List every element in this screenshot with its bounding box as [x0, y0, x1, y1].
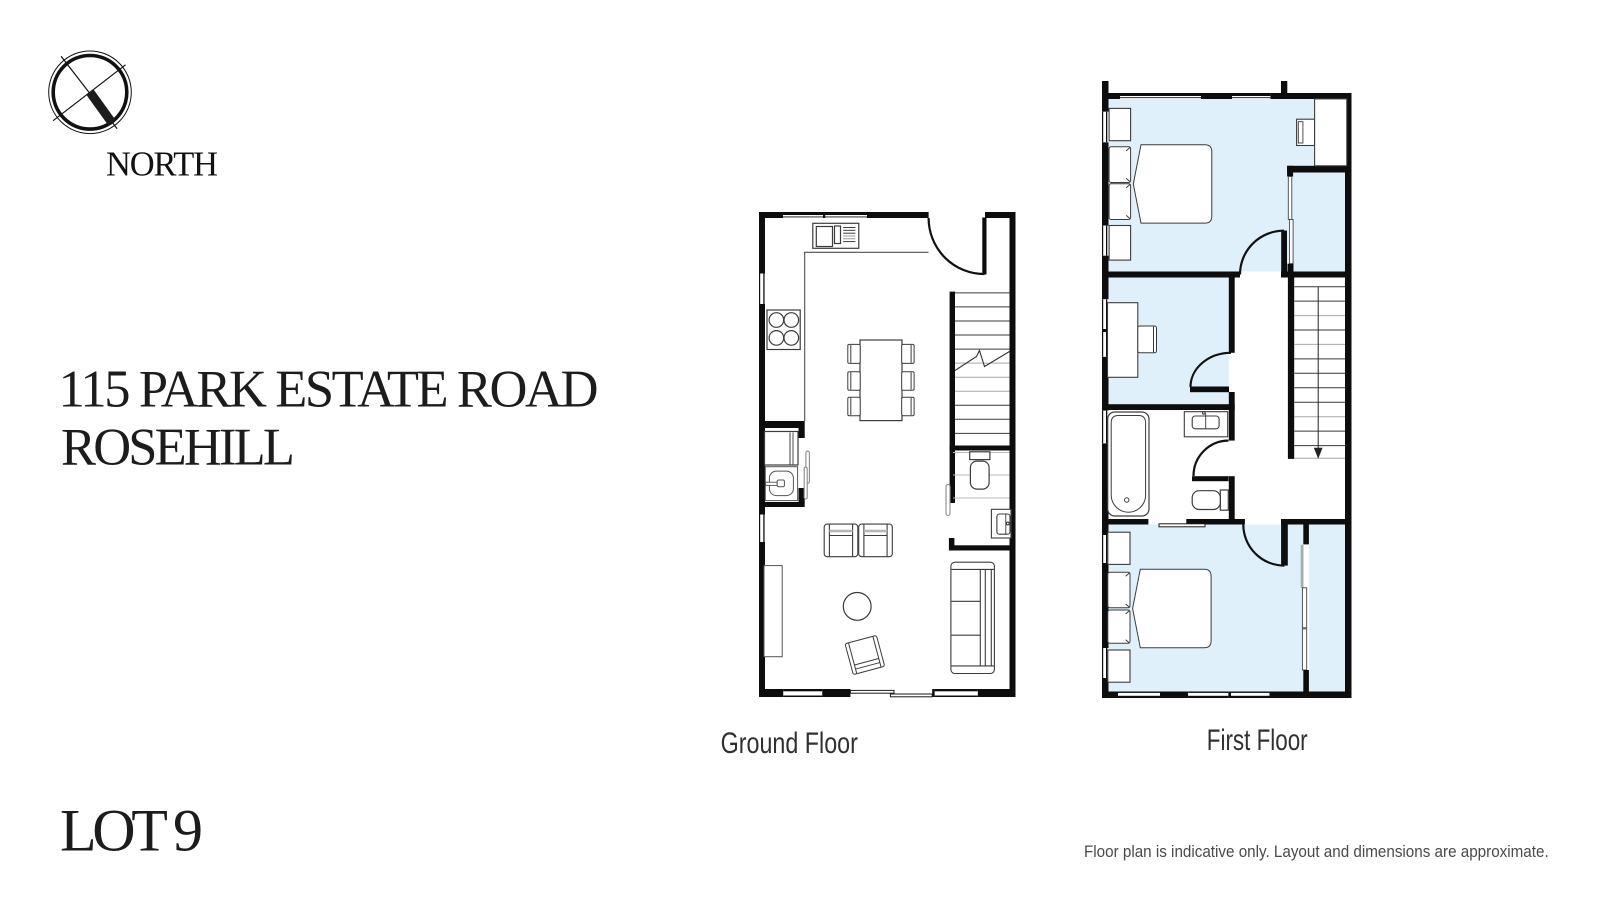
svg-text:Ground Floor: Ground Floor	[721, 726, 858, 759]
svg-text:LOT 9: LOT 9	[60, 798, 203, 864]
svg-text:ROSEHILL: ROSEHILL	[61, 419, 295, 477]
svg-text:NORTH: NORTH	[106, 146, 218, 184]
svg-text:First Floor: First Floor	[1207, 723, 1308, 757]
svg-text:115 PARK ESTATE ROAD: 115 PARK ESTATE ROAD	[59, 361, 599, 419]
svg-text:Floor plan is indicative only.: Floor plan is indicative only. Layout an…	[1084, 842, 1549, 861]
